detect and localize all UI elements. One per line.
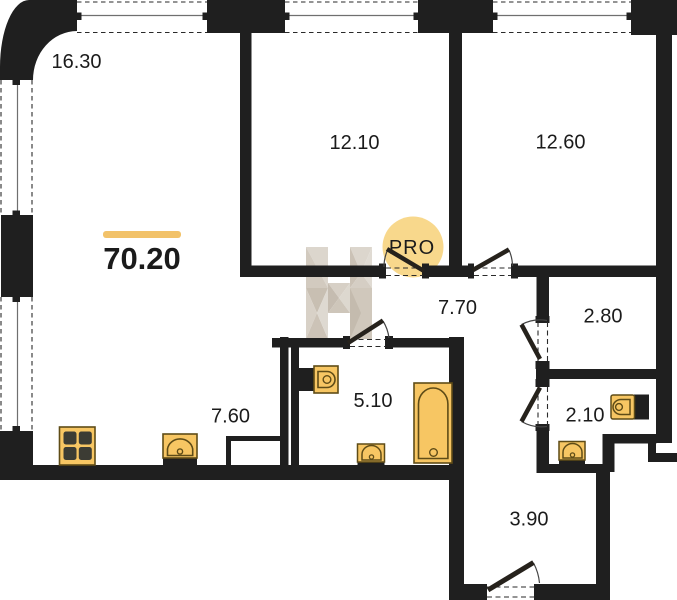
svg-text:12.10: 12.10 [329,132,379,154]
svg-text:2.10: 2.10 [566,405,605,427]
svg-text:5.10: 5.10 [354,390,393,412]
svg-text:2.80: 2.80 [584,306,623,328]
svg-text:70.20: 70.20 [103,241,181,276]
svg-text:16.30: 16.30 [51,51,101,73]
svg-text:12.60: 12.60 [535,132,585,154]
svg-text:7.70: 7.70 [438,297,477,319]
svg-text:3.90: 3.90 [510,509,549,531]
svg-text:7.60: 7.60 [211,406,250,428]
